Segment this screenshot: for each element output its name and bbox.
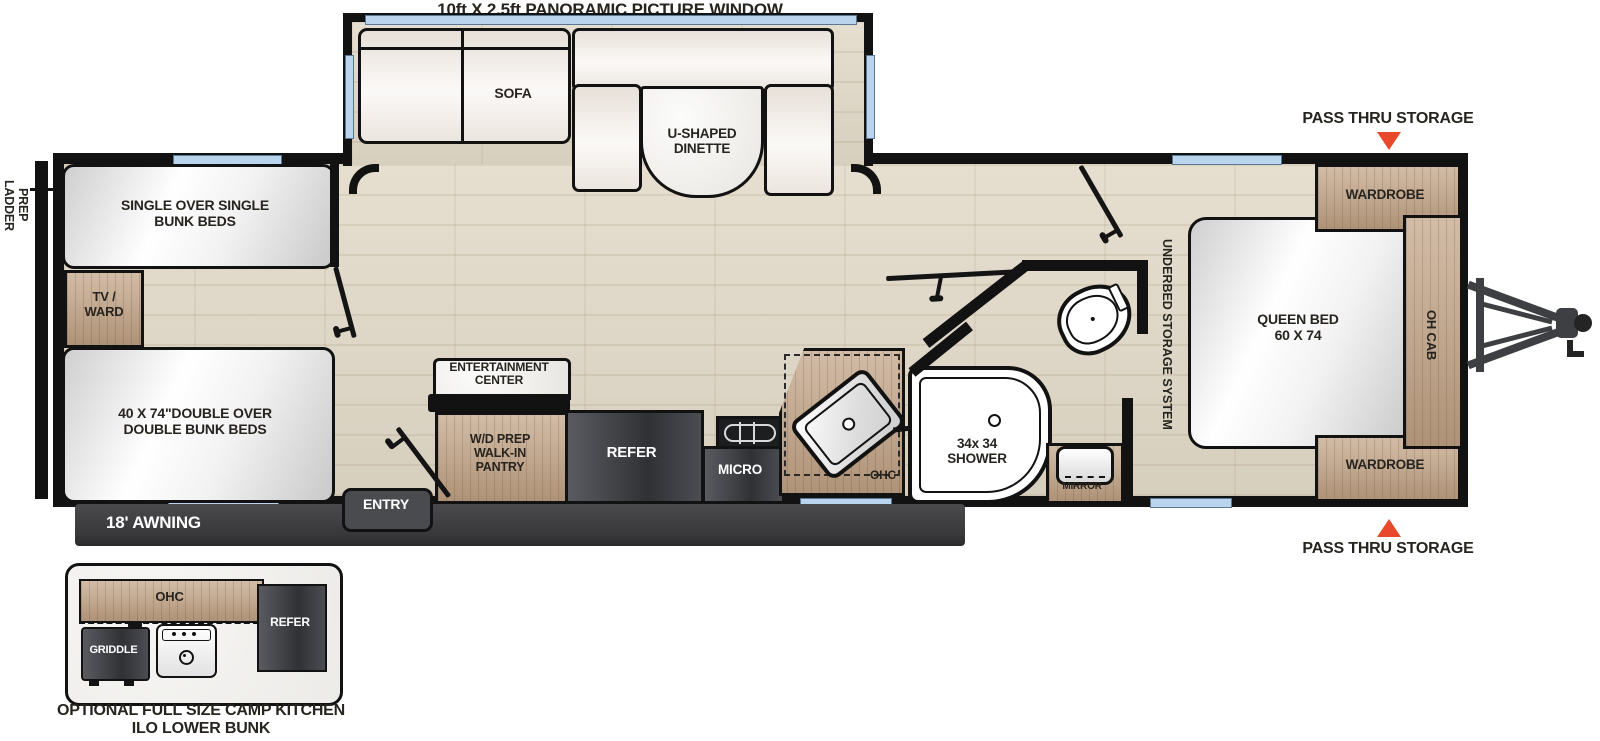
inset-caption: OPTIONAL FULL SIZE CAMP KITCHEN ILO LOWE… (20, 702, 382, 738)
label-line: SHOWER (922, 451, 1032, 466)
label-line: BUNK BEDS (70, 214, 320, 230)
rv-floorplan: 10ft X 2.5ft PANORAMIC PICTURE WINDOW SO… (0, 0, 1600, 741)
label-line: SINGLE OVER SINGLE (70, 198, 320, 214)
label-line: PREP (16, 150, 30, 260)
pass-thru-top-arrow-icon (1377, 132, 1401, 150)
bunkroom-wall (330, 164, 339, 267)
oh-cab-label: OH CAB (1420, 290, 1438, 380)
shower-label: 34x 34 SHOWER (922, 436, 1032, 466)
range-knob-dot (182, 632, 186, 636)
range-control-strip (162, 629, 211, 641)
door-handle-nub (929, 295, 943, 302)
label-line: 34x 34 (922, 436, 1032, 451)
rear-bumper (35, 161, 48, 499)
queen-bed-label: QUEEN BED 60 X 74 (1208, 312, 1388, 343)
inset-refer-label: REFER (257, 616, 323, 629)
hitch-icon (1466, 260, 1594, 392)
sofa-label: SOFA (463, 86, 563, 102)
bedroom-top-window (1172, 155, 1282, 165)
label-line: WALK-IN (435, 446, 565, 460)
label-line: ENTERTAINMENT (433, 361, 565, 374)
griddle-knob (128, 621, 142, 628)
label-line: DINETTE (640, 141, 764, 156)
mirror-label: MIRROR (1048, 481, 1116, 492)
griddle-foot (89, 681, 99, 686)
double-bunks-label: 40 X 74"DOUBLE OVER DOUBLE BUNK BEDS (70, 406, 320, 437)
refer-label: REFER (565, 445, 698, 462)
dinette-label: U-SHAPED DINETTE (640, 126, 764, 156)
label-line: WARD (64, 305, 144, 320)
griddle-foot (124, 681, 134, 686)
dinette-bench-top (572, 28, 834, 92)
label-line: PANTRY (435, 460, 565, 474)
ladder-prep-label: LADDER PREP (2, 150, 30, 260)
shower-pan-inner (919, 377, 1041, 493)
tv-shelf (428, 394, 570, 412)
label-line: W/D PREP (435, 432, 565, 446)
shower-drain (988, 414, 1001, 427)
dinette-bench-left (572, 84, 642, 192)
inset-range-icon (156, 624, 217, 678)
bath-right-wall (1137, 260, 1148, 334)
range-burner (179, 650, 194, 665)
kitchen-ohc-label: OHC (860, 469, 906, 482)
sofa-back (361, 31, 568, 50)
label-line: U-SHAPED (640, 126, 764, 141)
micro-label: MICRO (700, 462, 780, 477)
pass-thru-bottom-arrow-icon (1377, 519, 1401, 537)
bath-top-wall (1022, 260, 1148, 271)
panoramic-window (365, 15, 857, 25)
shower-pan (908, 366, 1052, 504)
wardrobe-top-label: WARDROBE (1315, 187, 1455, 202)
label-line: DOUBLE BUNK BEDS (70, 422, 320, 438)
label-line: CENTER (433, 374, 565, 387)
entertainment-label: ENTERTAINMENT CENTER (433, 361, 565, 388)
label-line: QUEEN BED (1208, 312, 1388, 328)
slideout-left-window (345, 55, 354, 139)
pantry-label: W/D PREP WALK-IN PANTRY (435, 432, 565, 474)
cooktop-grate-bar (739, 422, 741, 444)
wardrobe-bottom-label: WARDROBE (1315, 457, 1455, 472)
ladder-prep-pointer (30, 188, 58, 191)
pass-thru-bottom-label: PASS THRU STORAGE (1258, 540, 1518, 558)
awning-label: 18' AWNING (106, 513, 246, 532)
cooktop-grate-bar (753, 422, 755, 444)
bedroom-bottom-window (1150, 498, 1232, 508)
tv-ward-label: TV / WARD (64, 290, 144, 319)
label-line: 40 X 74"DOUBLE OVER (70, 406, 320, 422)
cooktop-grate (724, 424, 776, 442)
label-line: ILO LOWER BUNK (20, 720, 382, 738)
entry-label: ENTRY (342, 497, 430, 513)
single-bunks-label: SINGLE OVER SINGLE BUNK BEDS (70, 198, 320, 229)
label-line: OPTIONAL FULL SIZE CAMP KITCHEN (20, 702, 382, 720)
bath-lower-wall (1122, 398, 1133, 496)
bathroom-sink-icon (1056, 446, 1114, 485)
cooktop-icon (716, 416, 784, 450)
inset-ohc-label: OHC (79, 590, 260, 605)
label-line: TV / (64, 290, 144, 305)
inset-griddle-label: GRIDDLE (81, 644, 146, 656)
camp-kitchen-inset: OHC REFER GRIDDLE (65, 563, 343, 706)
dinette-bench-right (764, 84, 834, 196)
pass-thru-top-label: PASS THRU STORAGE (1258, 110, 1518, 128)
range-burner-dot (183, 654, 186, 657)
bathroom-sink-line (1065, 476, 1105, 478)
top-wall-front-segment (872, 153, 1468, 164)
underbed-storage-label: UNDERBED STORAGE SYSTEM (1154, 222, 1174, 446)
label-line: LADDER (2, 150, 16, 260)
range-knob-dot (192, 632, 196, 636)
slideout-right-window (866, 55, 875, 139)
label-line: 60 X 74 (1208, 328, 1388, 344)
range-knob-dot (172, 632, 176, 636)
